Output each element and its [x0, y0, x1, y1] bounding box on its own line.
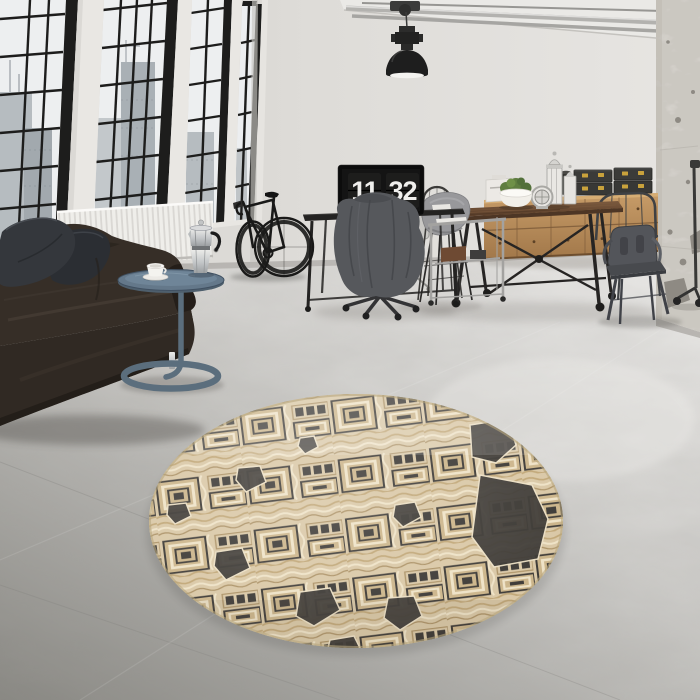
- lamp-diffuser: [390, 73, 424, 79]
- shelf-box: [441, 246, 466, 262]
- scene: 11 32: [0, 0, 700, 700]
- loft-interior-photo: 11 32: [0, 0, 700, 700]
- desk-paper: [432, 204, 451, 210]
- round-lantern: [532, 187, 553, 210]
